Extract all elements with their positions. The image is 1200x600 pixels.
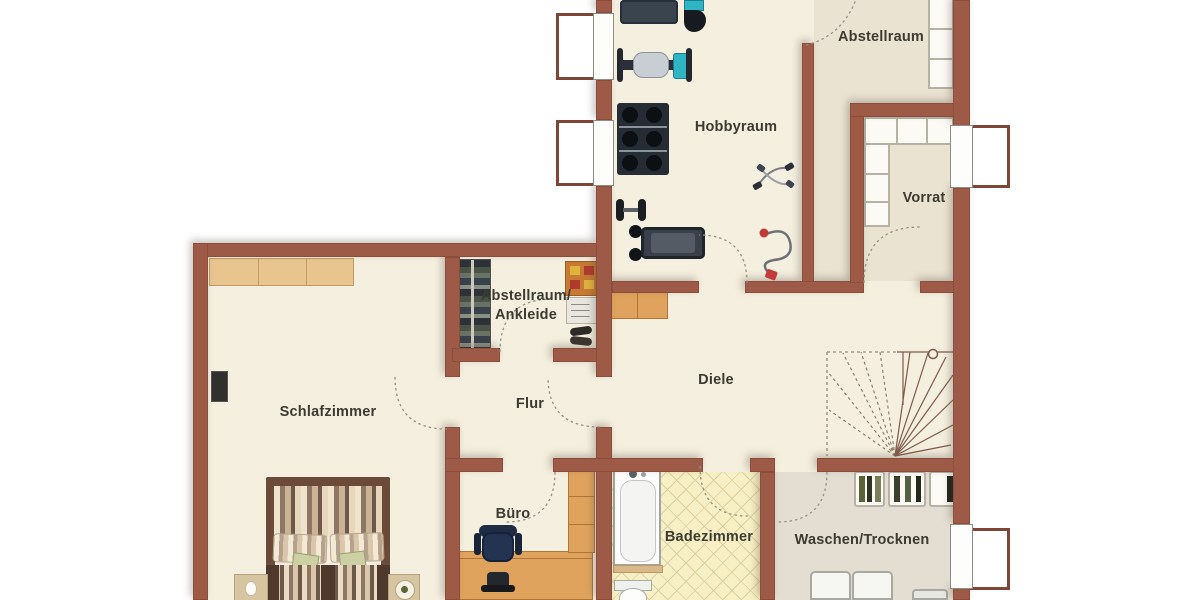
room-label-buero: Büro [496, 506, 531, 522]
room-label-badezimmer: Badezimmer [665, 529, 753, 545]
room-label-schlafzimmer: Schlafzimmer [280, 404, 377, 420]
room-label-abstellraum: Abstellraum [838, 29, 924, 45]
room-label-diele: Diele [698, 372, 734, 388]
floorplan-canvas: Abstellraum Hobbyraum Vorrat Abstellraum… [0, 0, 1200, 600]
stair-newel [929, 350, 938, 359]
room-label-ankleide: Abstellraum/ Ankleide [466, 287, 586, 325]
door-swings [395, 0, 920, 522]
room-label-flur: Flur [516, 396, 544, 412]
room-label-waschen: Waschen/Trocknen [795, 532, 930, 548]
room-label-hobbyraum: Hobbyraum [695, 119, 777, 135]
room-label-ankleide-line1: Abstellraum/ [481, 288, 571, 304]
winder-stairs [827, 350, 953, 457]
room-label-ankleide-line2: Ankleide [495, 307, 557, 323]
floorplan-overlay [0, 0, 1200, 600]
room-label-vorrat: Vorrat [903, 190, 946, 206]
resistance-band-icon [760, 229, 791, 281]
jump-rope-icon [752, 162, 795, 191]
